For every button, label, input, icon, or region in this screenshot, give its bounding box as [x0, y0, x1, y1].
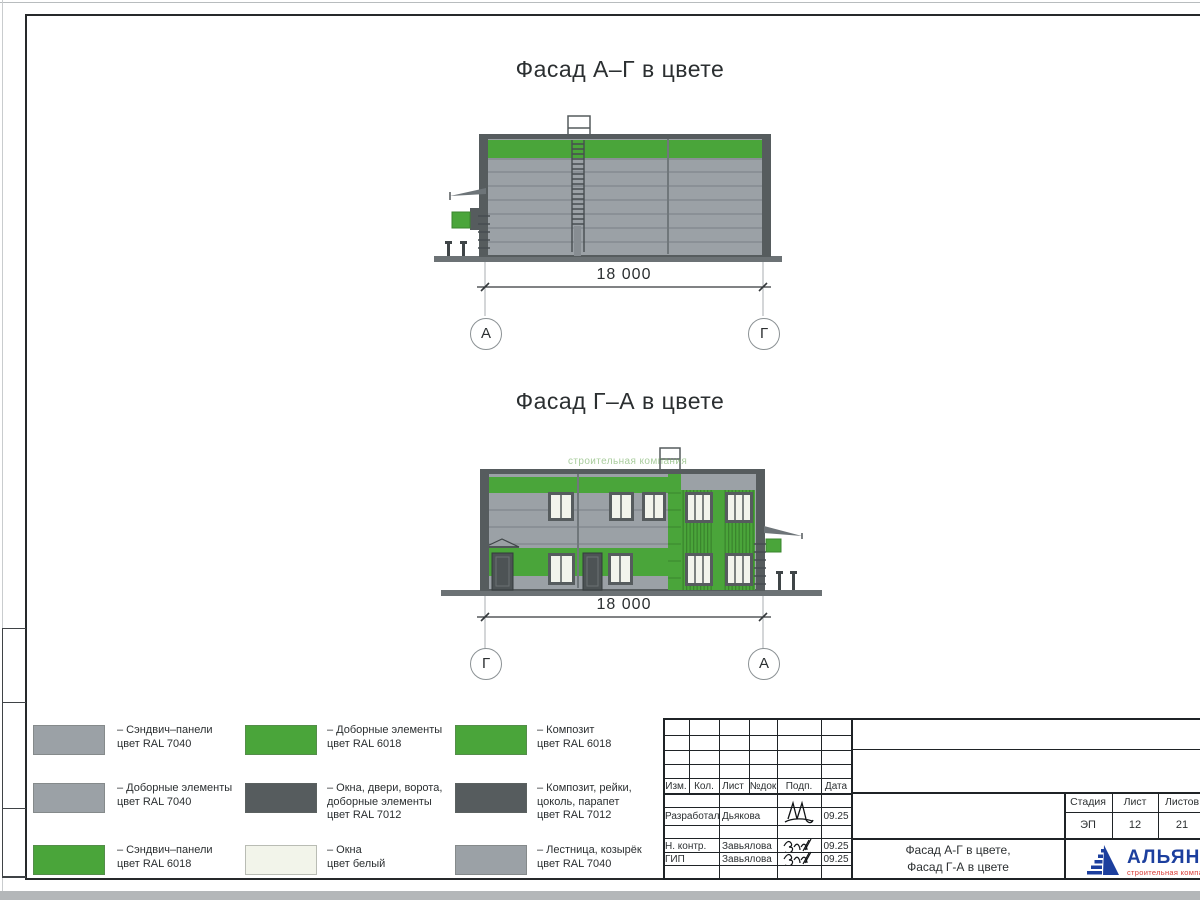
facade-ag-title: Фасад А–Г в цвете	[420, 56, 820, 83]
legend-swatch	[245, 783, 317, 813]
company-logo-text: АЛЬЯНС	[1127, 847, 1200, 869]
axis-marker-g: Г	[748, 318, 780, 350]
right-canopy	[764, 526, 802, 539]
row-name: Дьякова	[722, 810, 776, 823]
legend-swatch	[455, 725, 527, 755]
legend-swatch	[33, 725, 105, 755]
legend-label: – Сэндвич–панели цвет RAL 7040	[117, 724, 213, 751]
legend-label: – Лестница, козырёк цвет RAL 7040	[537, 844, 642, 871]
signature	[780, 799, 818, 827]
header-list: Лист	[717, 780, 749, 793]
legend-swatch	[245, 845, 317, 875]
legend-label: – Доборные элементы цвет RAL 7040	[117, 782, 232, 809]
signature	[780, 838, 818, 852]
doc-title: Фасад А-Г в цвете, Фасад Г-А в цвете	[854, 842, 1062, 876]
doc-title-line2: Фасад Г-А в цвете	[854, 859, 1062, 876]
row-date: 09.25	[821, 840, 851, 853]
header-data: Дата	[821, 780, 851, 793]
stage-label: Стадия	[1064, 796, 1112, 809]
row-date: 09.25	[821, 810, 851, 823]
page-edge-top	[0, 2, 1200, 3]
legend-swatch	[455, 783, 527, 813]
axis-marker-a: А	[470, 318, 502, 350]
facade-ga-title: Фасад Г–А в цвете	[420, 388, 820, 415]
legend-label: – Композит, рейки, цоколь, парапет цвет …	[537, 782, 632, 823]
facade-ga-dimension: 18 000	[524, 596, 724, 614]
row-name: Завьялова	[722, 853, 778, 866]
header-kol: Кол.	[689, 780, 719, 793]
company-logo-subtext: строительная компания	[1127, 868, 1200, 877]
row-role: ГИП	[665, 853, 719, 866]
legend-swatch	[33, 845, 105, 875]
company-logo-icon	[1085, 844, 1121, 876]
row-name: Завьялова	[722, 840, 778, 853]
page-edge-bottom	[0, 891, 1200, 900]
building-body	[480, 135, 770, 256]
doc-title-line1: Фасад А-Г в цвете,	[854, 842, 1062, 859]
drawing-sheet: Фасад А–Г в цвете	[0, 0, 1200, 900]
bollards-left	[445, 241, 467, 256]
sheet-label: Лист	[1112, 796, 1158, 809]
facade-ag-drawing	[420, 96, 820, 356]
legend-label: – Сэндвич–панели цвет RAL 6018	[117, 844, 213, 871]
header-ndok: №док	[747, 780, 779, 793]
header-podp: Подп.	[777, 780, 821, 793]
axis-marker-g2: Г	[470, 648, 502, 680]
legend-label: – Доборные элементы цвет RAL 6018	[327, 724, 442, 751]
legend-label: – Окна, двери, ворота, доборные элементы…	[327, 782, 442, 823]
legend-label: – Композит цвет RAL 6018	[537, 724, 611, 751]
axis-marker-a2: А	[748, 648, 780, 680]
legend-swatch	[33, 783, 105, 813]
legend-label: – Окна цвет белый	[327, 844, 385, 871]
sheets-value: 21	[1158, 812, 1200, 838]
legend-swatch	[455, 845, 527, 875]
watermark-text: строительная компания	[568, 456, 728, 467]
sheet-value: 12	[1112, 812, 1158, 838]
sheets-label: Листов	[1158, 796, 1200, 809]
row-role: Н. контр.	[665, 840, 719, 853]
facade-ag-dimension: 18 000	[524, 266, 724, 284]
bollards-right	[776, 571, 797, 590]
row-role: Разработал	[665, 810, 719, 823]
legend-swatch	[245, 725, 317, 755]
signature	[780, 851, 818, 865]
header-izm: Изм.	[663, 780, 689, 793]
stage-value: ЭП	[1064, 812, 1112, 838]
row-date: 09.25	[821, 853, 851, 866]
